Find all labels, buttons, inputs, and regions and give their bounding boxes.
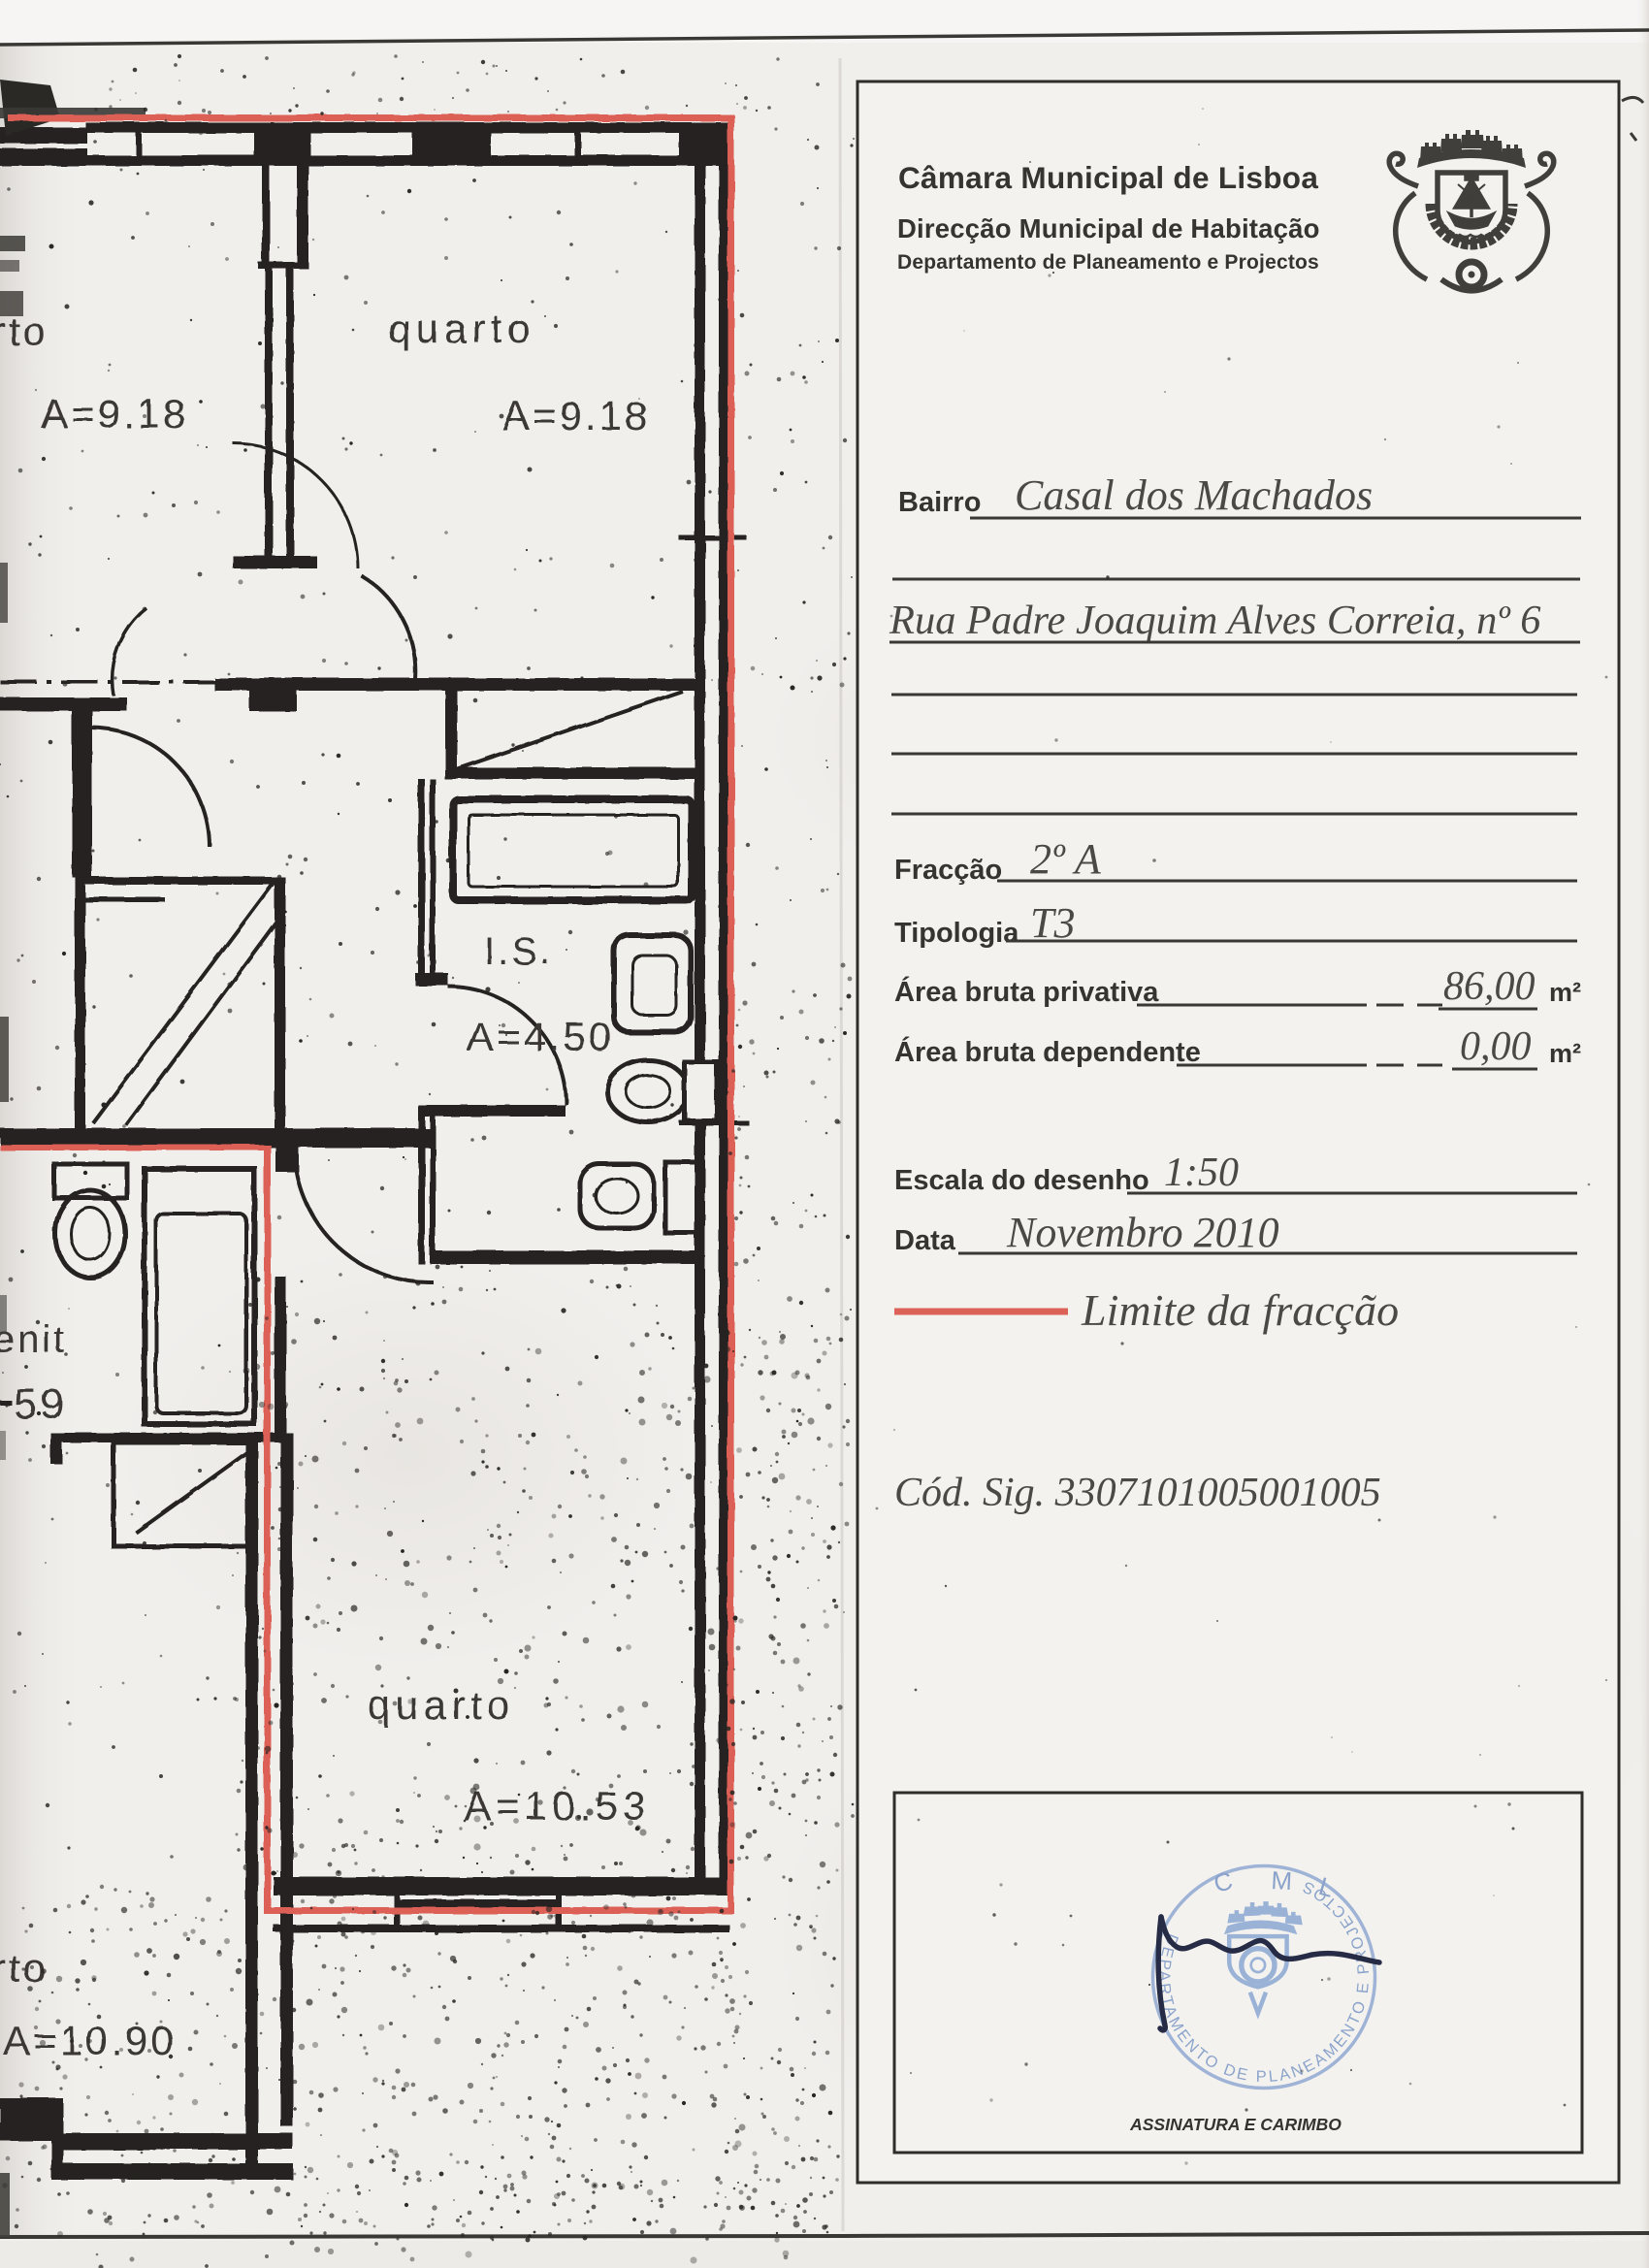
svg-text:quarto: quarto xyxy=(368,1682,515,1728)
svg-text:ASSINATURA E CARIMBO: ASSINATURA E CARIMBO xyxy=(1129,2115,1342,2134)
svg-text:m²: m² xyxy=(1549,978,1581,1007)
svg-text:A=10.53: A=10.53 xyxy=(464,1783,651,1829)
svg-text:rto: rto xyxy=(0,308,48,354)
svg-text:zenit: zenit xyxy=(0,1318,68,1361)
svg-text:Tipologia: Tipologia xyxy=(894,918,1019,949)
svg-text:Área bruta privativa: Área bruta privativa xyxy=(894,975,1159,1008)
svg-text:M: M xyxy=(1271,1865,1293,1895)
svg-text:2º A: 2º A xyxy=(1030,835,1102,883)
svg-text:Limite da fracção: Limite da fracção xyxy=(1081,1285,1399,1335)
svg-text:A=9.18: A=9.18 xyxy=(41,391,188,437)
svg-text:Escala do desenho: Escala do desenho xyxy=(894,1165,1149,1196)
svg-text:Departamento de Planeamento e: Departamento de Planeamento e Projectos xyxy=(897,251,1319,274)
svg-text:Cód. Sig. 3307101005001005: Cód. Sig. 3307101005001005 xyxy=(894,1471,1381,1515)
svg-text:1:50: 1:50 xyxy=(1164,1150,1239,1195)
svg-text:Bairro: Bairro xyxy=(898,487,981,518)
svg-text:rto: rto xyxy=(0,1945,48,1991)
svg-text:quarto: quarto xyxy=(388,306,535,351)
svg-text:Direcção Municipal de Habitaçã: Direcção Municipal de Habitação xyxy=(897,213,1320,243)
svg-text:Casal dos Machados: Casal dos Machados xyxy=(1015,471,1373,519)
svg-text:m²: m² xyxy=(1549,1039,1581,1068)
svg-text:A=4.50: A=4.50 xyxy=(467,1014,614,1059)
svg-text:Fracção: Fracção xyxy=(894,855,1002,886)
svg-text:A=9.18: A=9.18 xyxy=(502,393,650,438)
svg-text:I.S.: I.S. xyxy=(484,930,554,973)
svg-text:Rua Padre Joaquim Alves Correi: Rua Padre Joaquim Alves Correia, nº 6 xyxy=(889,598,1541,643)
svg-text:Data: Data xyxy=(894,1225,956,1256)
svg-text:59: 59 xyxy=(14,1380,67,1428)
svg-text:Câmara Municipal de Lisboa: Câmara Municipal de Lisboa xyxy=(898,160,1318,195)
svg-text:0,00: 0,00 xyxy=(1460,1024,1532,1069)
svg-text:86,00: 86,00 xyxy=(1443,964,1536,1009)
svg-text:Novembro 2010: Novembro 2010 xyxy=(1006,1209,1279,1256)
svg-text:Área bruta dependente: Área bruta dependente xyxy=(894,1035,1201,1068)
